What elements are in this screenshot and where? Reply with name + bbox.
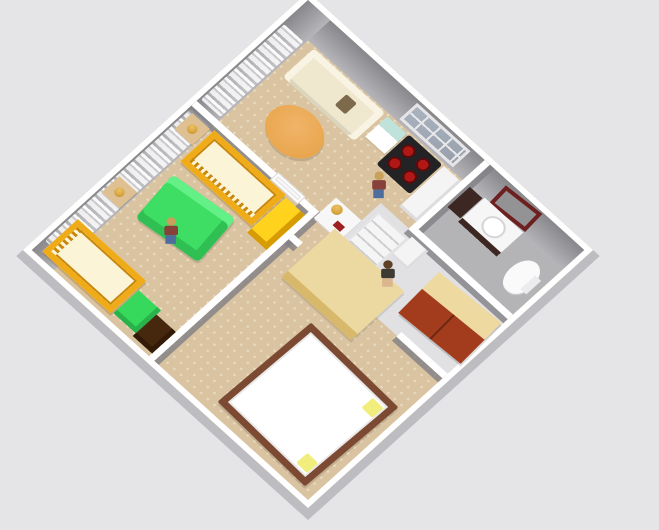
person-head [166,217,175,226]
floor-plan [23,0,593,508]
person-legs [165,235,176,244]
wardrobe-door-seam [429,315,454,340]
person-woman-hallway[interactable] [380,260,395,287]
person-head [383,260,392,269]
person-head [374,172,383,181]
sofa-cushion [335,94,357,114]
person-man-kitchen[interactable] [371,172,386,199]
bed-pillow [296,453,318,473]
3d-view-canvas[interactable] [0,0,659,530]
table-lamp-icon [112,186,127,199]
person-torso [164,226,178,236]
person-torso [372,180,386,190]
person-legs [382,278,393,287]
bed-pillow [361,398,383,418]
person-torso [381,269,395,279]
person-legs [373,190,384,199]
table-lamp-icon [185,122,200,135]
sink-basin [476,212,511,243]
person-man-nursery[interactable] [163,217,178,244]
desk-lamp [329,202,345,217]
